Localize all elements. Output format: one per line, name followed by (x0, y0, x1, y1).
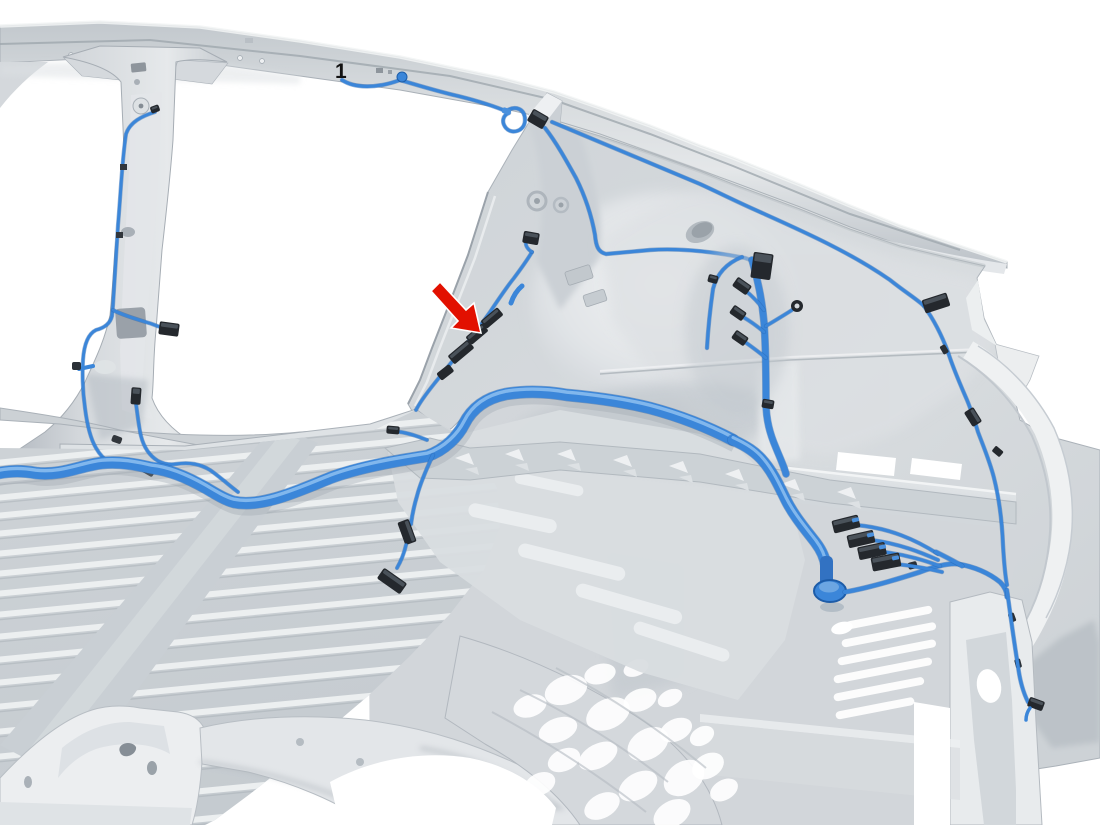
svg-text:1: 1 (335, 60, 347, 83)
